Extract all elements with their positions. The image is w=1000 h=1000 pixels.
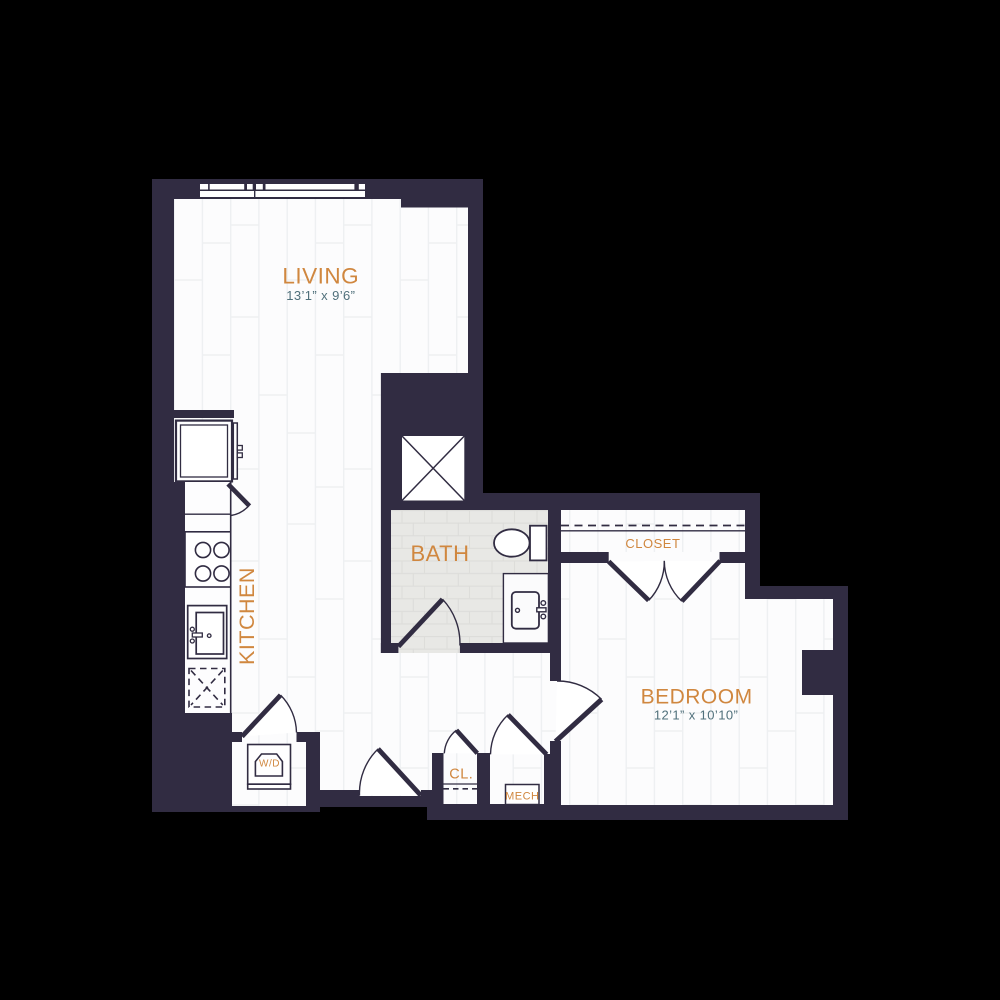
svg-text:W/D: W/D xyxy=(259,759,280,770)
svg-text:KITCHEN: KITCHEN xyxy=(235,567,259,665)
svg-text:13’1” x 9’6”: 13’1” x 9’6” xyxy=(286,288,355,303)
svg-text:CLOSET: CLOSET xyxy=(625,536,680,551)
svg-text:12’1” x 10’10”: 12’1” x 10’10” xyxy=(654,708,738,723)
svg-text:BATH: BATH xyxy=(410,541,469,566)
svg-text:MECH: MECH xyxy=(505,790,539,802)
svg-text:LIVING: LIVING xyxy=(282,264,359,289)
svg-text:BEDROOM: BEDROOM xyxy=(641,685,753,708)
svg-text:CL.: CL. xyxy=(449,767,473,783)
